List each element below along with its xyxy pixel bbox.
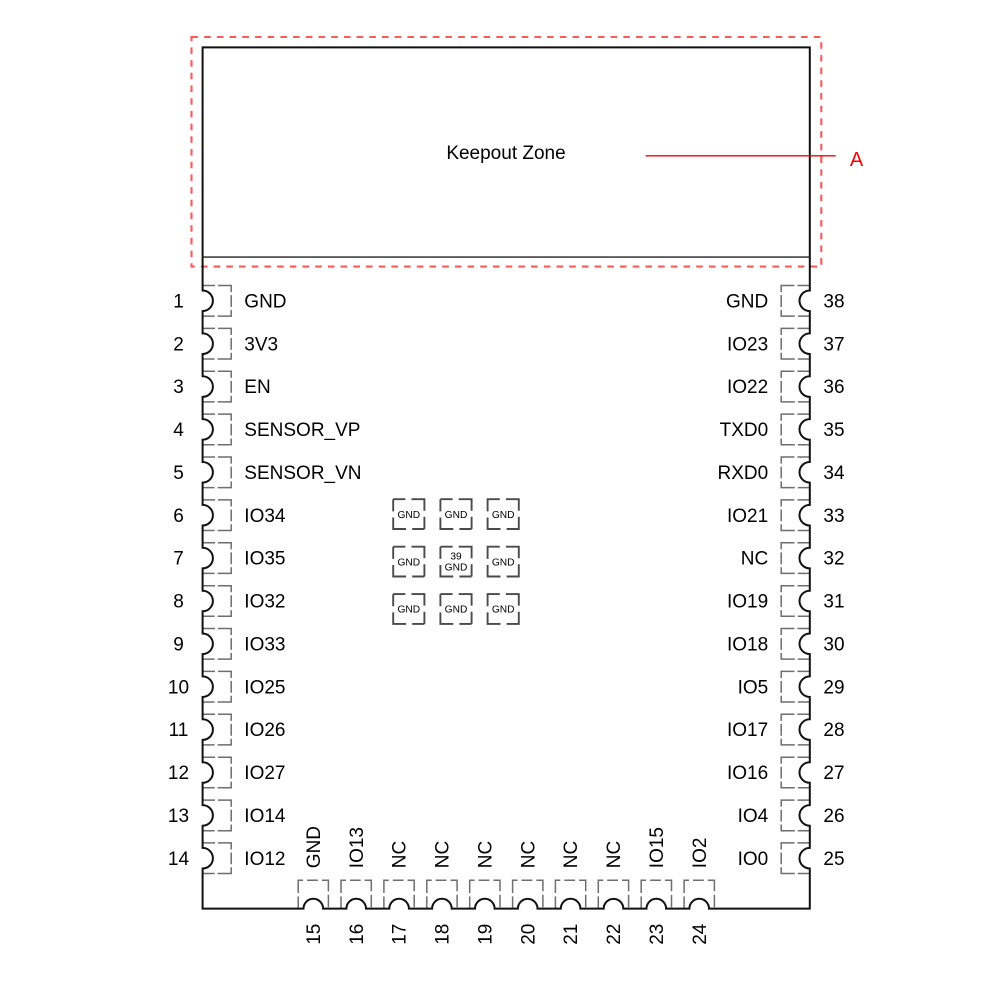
svg-text:2: 2 [173, 334, 184, 355]
svg-text:NC: NC [741, 549, 768, 570]
svg-text:TXD0: TXD0 [720, 420, 769, 441]
svg-text:NC: NC [518, 841, 539, 868]
svg-text:26: 26 [823, 806, 844, 827]
svg-text:19: 19 [475, 924, 496, 945]
svg-text:29: 29 [823, 677, 844, 698]
svg-text:IO25: IO25 [244, 677, 285, 698]
svg-text:16: 16 [347, 924, 368, 945]
svg-text:25: 25 [823, 849, 844, 870]
svg-text:IO23: IO23 [727, 334, 768, 355]
svg-text:27: 27 [823, 763, 844, 784]
svg-text:8: 8 [173, 592, 184, 613]
svg-text:IO35: IO35 [244, 549, 285, 570]
svg-text:9: 9 [173, 634, 184, 655]
svg-text:GND: GND [492, 557, 515, 568]
svg-text:IO15: IO15 [647, 827, 668, 868]
svg-text:3V3: 3V3 [244, 334, 278, 355]
svg-text:IO14: IO14 [244, 806, 286, 827]
svg-text:15: 15 [304, 924, 325, 945]
svg-text:4: 4 [173, 420, 184, 441]
svg-text:GND: GND [397, 605, 420, 616]
svg-text:3: 3 [173, 377, 184, 398]
svg-text:IO19: IO19 [727, 592, 768, 613]
svg-text:39: 39 [450, 552, 462, 563]
svg-text:30: 30 [823, 634, 844, 655]
svg-text:36: 36 [823, 377, 844, 398]
svg-text:SENSOR_VP: SENSOR_VP [244, 420, 360, 441]
svg-text:IO12: IO12 [244, 849, 285, 870]
svg-text:34: 34 [823, 463, 845, 484]
svg-text:13: 13 [168, 806, 189, 827]
svg-text:IO13: IO13 [347, 827, 368, 868]
svg-text:GND: GND [397, 510, 420, 521]
svg-text:IO16: IO16 [727, 763, 768, 784]
svg-text:GND: GND [445, 510, 468, 521]
svg-text:5: 5 [173, 463, 184, 484]
svg-text:1: 1 [173, 291, 184, 312]
svg-text:A: A [850, 149, 864, 171]
svg-text:17: 17 [390, 924, 411, 945]
svg-text:Keepout Zone: Keepout Zone [446, 143, 565, 164]
svg-text:12: 12 [168, 763, 189, 784]
svg-text:IO21: IO21 [727, 506, 768, 527]
svg-text:GND: GND [445, 605, 468, 616]
svg-text:GND: GND [397, 557, 420, 568]
svg-text:38: 38 [823, 291, 844, 312]
svg-text:IO18: IO18 [727, 634, 768, 655]
svg-text:GND: GND [492, 605, 515, 616]
svg-text:28: 28 [823, 720, 844, 741]
svg-text:23: 23 [647, 924, 668, 945]
svg-text:GND: GND [492, 510, 515, 521]
svg-text:24: 24 [690, 923, 711, 945]
svg-text:EN: EN [244, 377, 270, 398]
svg-text:GND: GND [726, 291, 768, 312]
svg-text:22: 22 [604, 924, 625, 945]
svg-text:32: 32 [823, 549, 844, 570]
svg-text:14: 14 [168, 849, 190, 870]
svg-text:IO33: IO33 [244, 634, 285, 655]
svg-text:6: 6 [173, 506, 184, 527]
svg-text:18: 18 [432, 924, 453, 945]
svg-text:11: 11 [169, 720, 189, 741]
svg-text:20: 20 [518, 924, 539, 945]
svg-text:NC: NC [390, 841, 411, 868]
svg-text:IO26: IO26 [244, 720, 285, 741]
svg-text:GND: GND [445, 562, 468, 573]
svg-text:IO34: IO34 [244, 506, 286, 527]
svg-text:GND: GND [304, 826, 325, 868]
svg-text:NC: NC [561, 841, 582, 868]
svg-text:NC: NC [475, 841, 496, 868]
svg-text:IO2: IO2 [690, 838, 711, 869]
svg-text:10: 10 [168, 677, 189, 698]
svg-text:RXD0: RXD0 [718, 463, 769, 484]
svg-text:SENSOR_VN: SENSOR_VN [244, 463, 361, 484]
svg-text:31: 31 [823, 592, 844, 613]
svg-text:GND: GND [244, 291, 286, 312]
svg-text:IO5: IO5 [738, 677, 769, 698]
svg-text:IO17: IO17 [727, 720, 768, 741]
svg-text:IO27: IO27 [244, 763, 285, 784]
svg-text:NC: NC [432, 841, 453, 868]
svg-text:NC: NC [604, 841, 625, 868]
svg-text:37: 37 [823, 334, 844, 355]
svg-text:IO22: IO22 [727, 377, 768, 398]
svg-text:IO32: IO32 [244, 592, 285, 613]
svg-text:IO0: IO0 [738, 849, 769, 870]
svg-text:7: 7 [173, 549, 184, 570]
svg-text:21: 21 [561, 924, 582, 945]
svg-text:35: 35 [823, 420, 844, 441]
svg-text:IO4: IO4 [738, 806, 769, 827]
svg-text:33: 33 [823, 506, 844, 527]
